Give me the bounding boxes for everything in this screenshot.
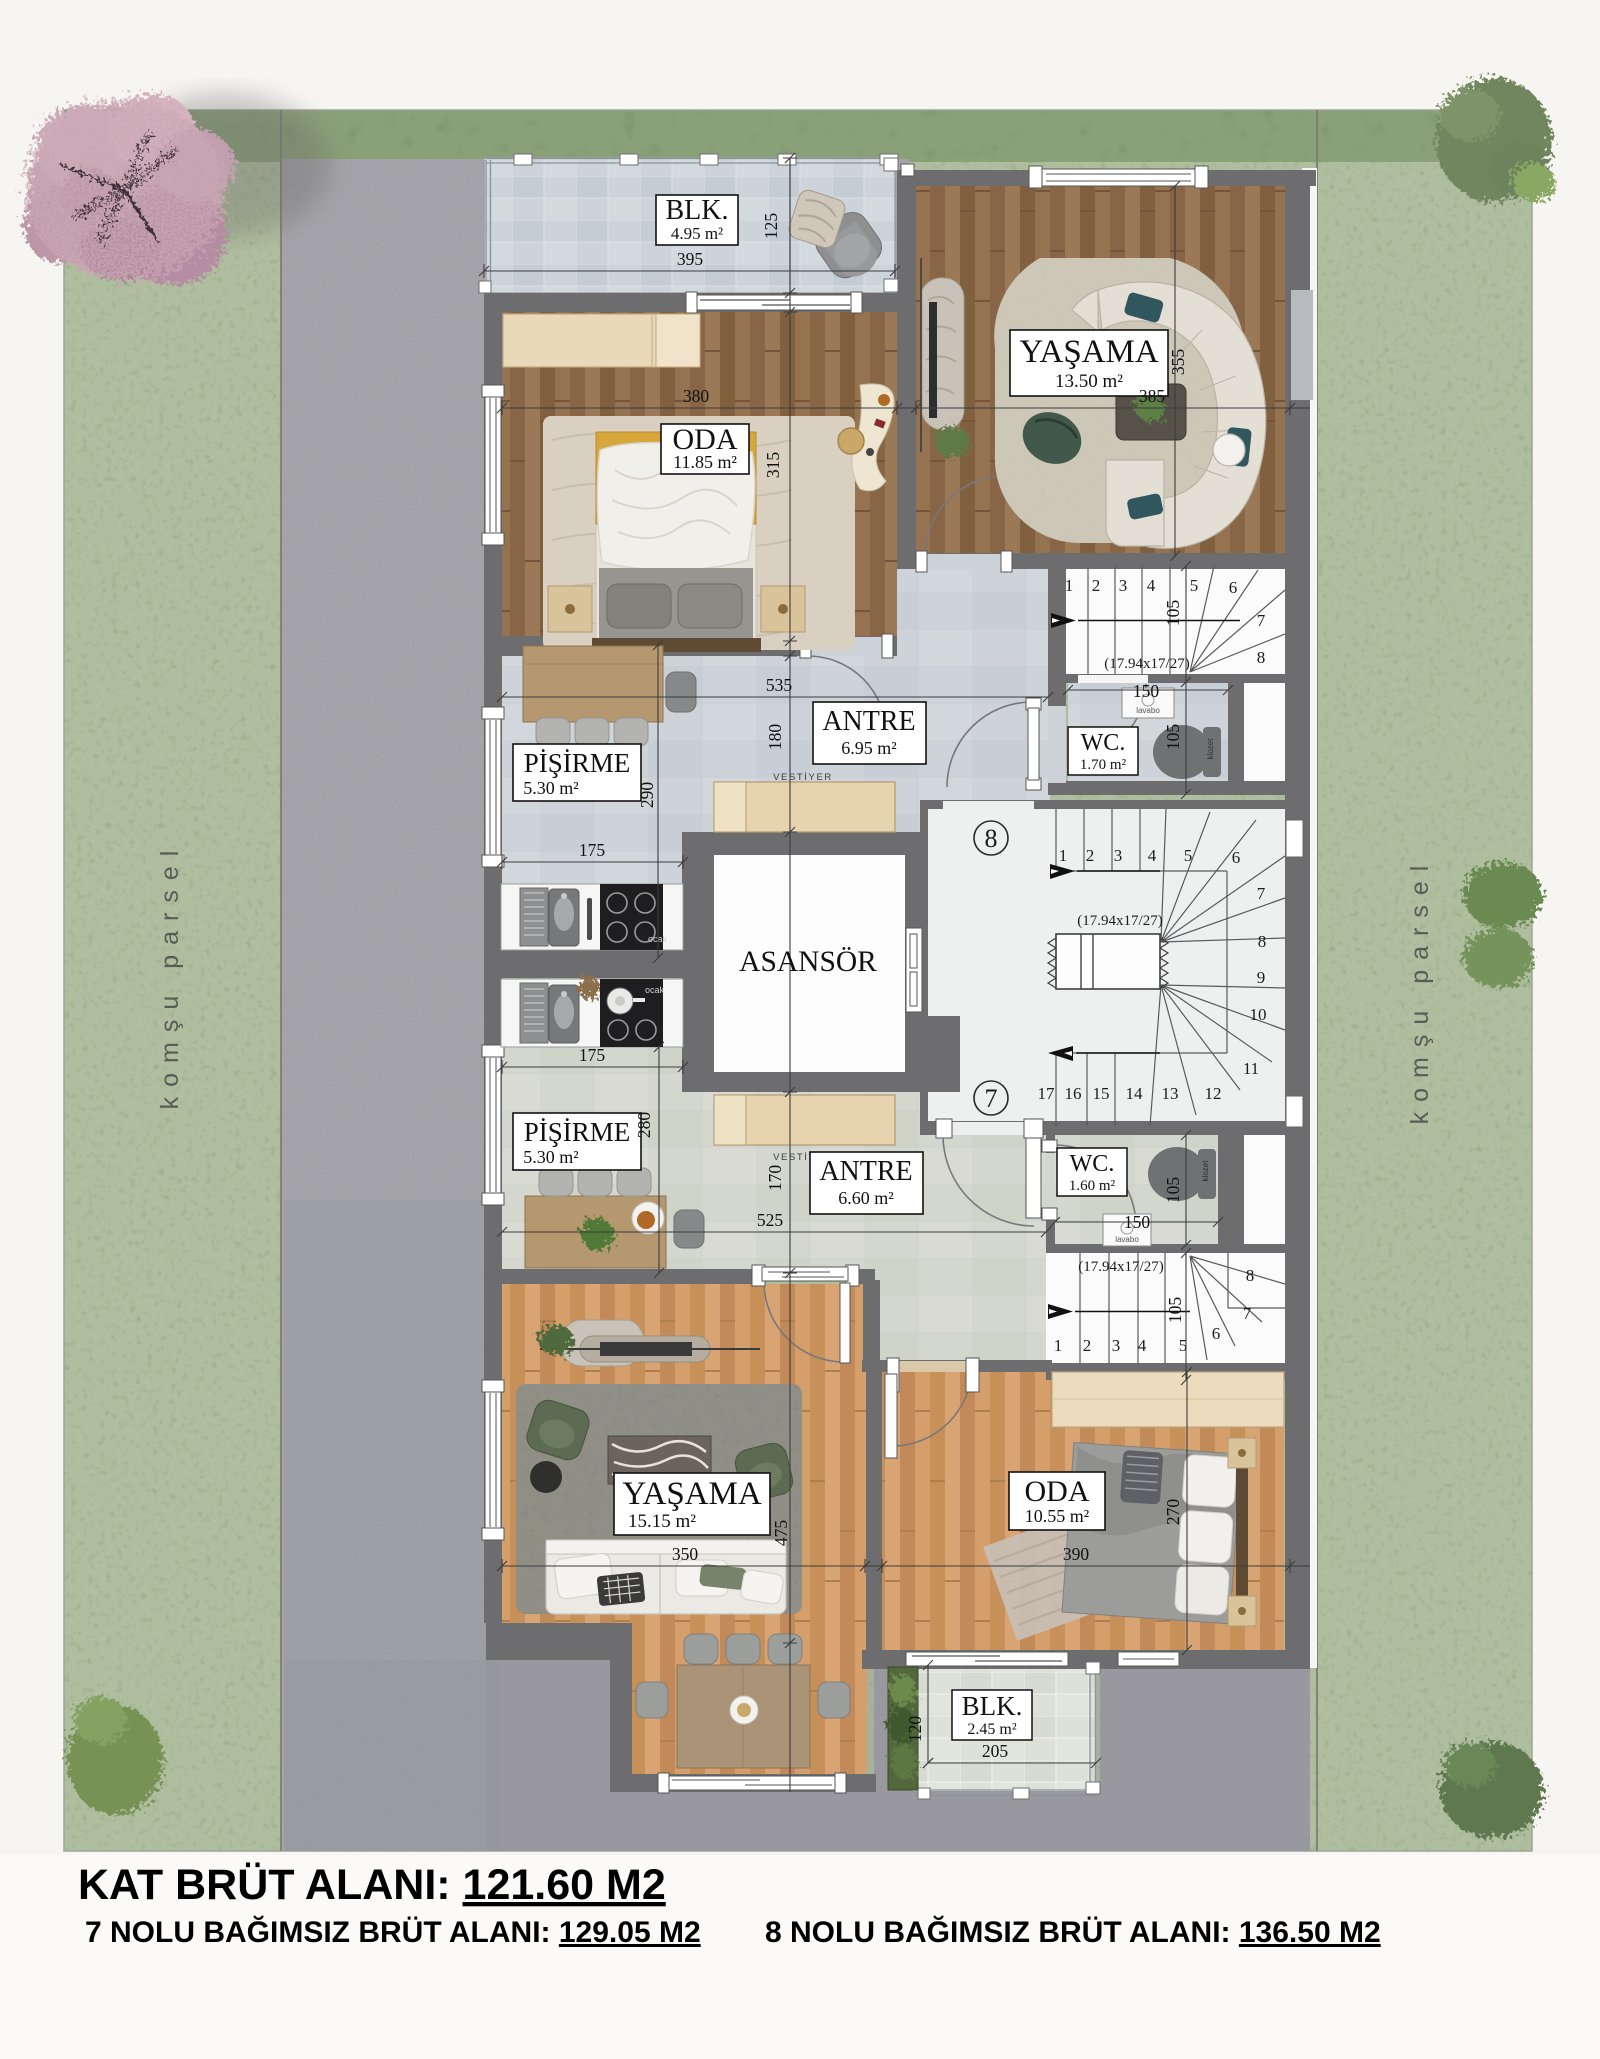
svg-text:105: 105 <box>1163 1177 1183 1204</box>
svg-text:3: 3 <box>1119 576 1128 595</box>
svg-text:BLK.: BLK. <box>666 195 729 226</box>
svg-text:150: 150 <box>1124 1212 1151 1232</box>
svg-text:4: 4 <box>1138 1336 1147 1355</box>
svg-text:lavabo: lavabo <box>1115 1235 1139 1244</box>
svg-text:9: 9 <box>1257 968 1266 987</box>
svg-text:175: 175 <box>579 1045 606 1065</box>
svg-text:270: 270 <box>1163 1499 1183 1526</box>
svg-text:315: 315 <box>763 452 783 479</box>
svg-text:KAT BRÜT ALANI: 121.60 M2: KAT BRÜT ALANI: 121.60 M2 <box>78 1861 666 1909</box>
svg-text:6: 6 <box>1232 848 1241 867</box>
svg-text:10.55 m²: 10.55 m² <box>1025 1506 1089 1526</box>
svg-text:1: 1 <box>1054 1336 1063 1355</box>
svg-text:lavabo: lavabo <box>1136 706 1160 715</box>
svg-text:14: 14 <box>1126 1084 1144 1103</box>
svg-text:8: 8 <box>985 824 998 853</box>
svg-text:6: 6 <box>1229 578 1238 597</box>
svg-text:5.30 m²: 5.30 m² <box>523 1147 578 1167</box>
svg-text:klozet: klozet <box>1201 1160 1210 1182</box>
svg-text:17: 17 <box>1038 1084 1056 1103</box>
svg-text:6.95 m²: 6.95 m² <box>841 738 896 758</box>
svg-text:YAŞAMA: YAŞAMA <box>1019 334 1159 370</box>
svg-text:5: 5 <box>1184 846 1193 865</box>
svg-text:13.50 m²: 13.50 m² <box>1055 371 1123 392</box>
svg-text:PİŞİRME: PİŞİRME <box>524 1117 631 1147</box>
svg-text:7: 7 <box>1257 884 1266 903</box>
svg-text:1.70 m²: 1.70 m² <box>1080 757 1127 773</box>
svg-text:10: 10 <box>1250 1005 1267 1024</box>
svg-text:VESTİYER: VESTİYER <box>773 772 833 783</box>
svg-text:2.45 m²: 2.45 m² <box>967 1721 1016 1738</box>
svg-text:2: 2 <box>1092 576 1101 595</box>
svg-text:120: 120 <box>905 1716 925 1743</box>
svg-text:ANTRE: ANTRE <box>822 706 915 737</box>
svg-text:3: 3 <box>1112 1336 1121 1355</box>
svg-text:280: 280 <box>634 1112 654 1139</box>
svg-text:3: 3 <box>1114 846 1123 865</box>
svg-text:6.60 m²: 6.60 m² <box>838 1188 893 1208</box>
svg-text:6: 6 <box>1212 1324 1221 1343</box>
svg-text:7: 7 <box>1243 1304 1252 1323</box>
svg-text:180: 180 <box>765 724 785 751</box>
svg-text:1: 1 <box>1065 576 1074 595</box>
svg-text:4.95 m²: 4.95 m² <box>671 224 723 243</box>
svg-text:komşu parsel: komşu parsel <box>156 841 184 1110</box>
svg-text:4: 4 <box>1148 846 1157 865</box>
svg-text:2: 2 <box>1086 846 1095 865</box>
svg-text:8: 8 <box>1246 1266 1255 1285</box>
svg-text:ASANSÖR: ASANSÖR <box>739 946 877 978</box>
svg-text:175: 175 <box>579 840 606 860</box>
svg-text:525: 525 <box>757 1210 784 1230</box>
svg-text:5: 5 <box>1190 576 1199 595</box>
svg-text:(17.94x17/27): (17.94x17/27) <box>1078 1259 1163 1275</box>
svg-text:15.15 m²: 15.15 m² <box>628 1511 696 1532</box>
svg-text:4: 4 <box>1147 576 1156 595</box>
svg-text:395: 395 <box>677 249 704 269</box>
svg-text:205: 205 <box>982 1741 1009 1761</box>
svg-text:5.30 m²: 5.30 m² <box>523 778 578 798</box>
svg-text:8 NOLU BAĞIMSIZ BRÜT ALANI: 13: 8 NOLU BAĞIMSIZ BRÜT ALANI: 136.50 M2 <box>765 1915 1381 1949</box>
svg-text:PİŞİRME: PİŞİRME <box>524 748 631 778</box>
svg-text:390: 390 <box>1063 1544 1090 1564</box>
svg-text:105: 105 <box>1163 600 1183 627</box>
svg-text:475: 475 <box>771 1520 791 1547</box>
svg-text:klozet: klozet <box>1206 738 1215 760</box>
svg-text:8: 8 <box>1258 932 1267 951</box>
svg-text:13: 13 <box>1162 1084 1179 1103</box>
svg-text:350: 350 <box>672 1544 699 1564</box>
svg-text:BLK.: BLK. <box>962 1691 1023 1721</box>
svg-text:125: 125 <box>761 213 781 240</box>
svg-text:ODA: ODA <box>1025 1475 1090 1508</box>
svg-text:ANTRE: ANTRE <box>819 1156 912 1187</box>
svg-text:8: 8 <box>1257 648 1266 667</box>
svg-text:290: 290 <box>637 782 657 809</box>
svg-text:7 NOLU BAĞIMSIZ BRÜT ALANI: 12: 7 NOLU BAĞIMSIZ BRÜT ALANI: 129.05 M2 <box>85 1915 701 1949</box>
svg-text:105: 105 <box>1163 724 1183 751</box>
svg-text:380: 380 <box>683 386 710 406</box>
svg-text:11.85 m²: 11.85 m² <box>673 452 737 472</box>
svg-text:385: 385 <box>1139 386 1166 406</box>
svg-text:WC.: WC. <box>1070 1151 1115 1177</box>
svg-text:1.60 m²: 1.60 m² <box>1069 1178 1116 1194</box>
svg-text:7: 7 <box>1257 611 1266 630</box>
svg-text:7: 7 <box>985 1084 998 1113</box>
svg-text:2: 2 <box>1083 1336 1092 1355</box>
svg-text:(17.94x17/27): (17.94x17/27) <box>1077 913 1162 929</box>
svg-text:1: 1 <box>1059 846 1068 865</box>
svg-text:11: 11 <box>1243 1059 1259 1078</box>
svg-text:ocak: ocak <box>645 985 665 995</box>
svg-text:15: 15 <box>1093 1084 1110 1103</box>
svg-text:12: 12 <box>1205 1084 1222 1103</box>
svg-text:355: 355 <box>1168 349 1188 376</box>
svg-text:WC.: WC. <box>1081 730 1126 756</box>
svg-text:16: 16 <box>1065 1084 1082 1103</box>
svg-text:170: 170 <box>765 1165 785 1192</box>
svg-text:535: 535 <box>766 675 793 695</box>
svg-text:YAŞAMA: YAŞAMA <box>622 1476 762 1512</box>
svg-text:150: 150 <box>1133 681 1160 701</box>
svg-text:(17.94x17/27): (17.94x17/27) <box>1104 656 1189 672</box>
svg-text:105: 105 <box>1165 1297 1185 1324</box>
svg-text:komşu parsel: komşu parsel <box>1406 856 1434 1125</box>
